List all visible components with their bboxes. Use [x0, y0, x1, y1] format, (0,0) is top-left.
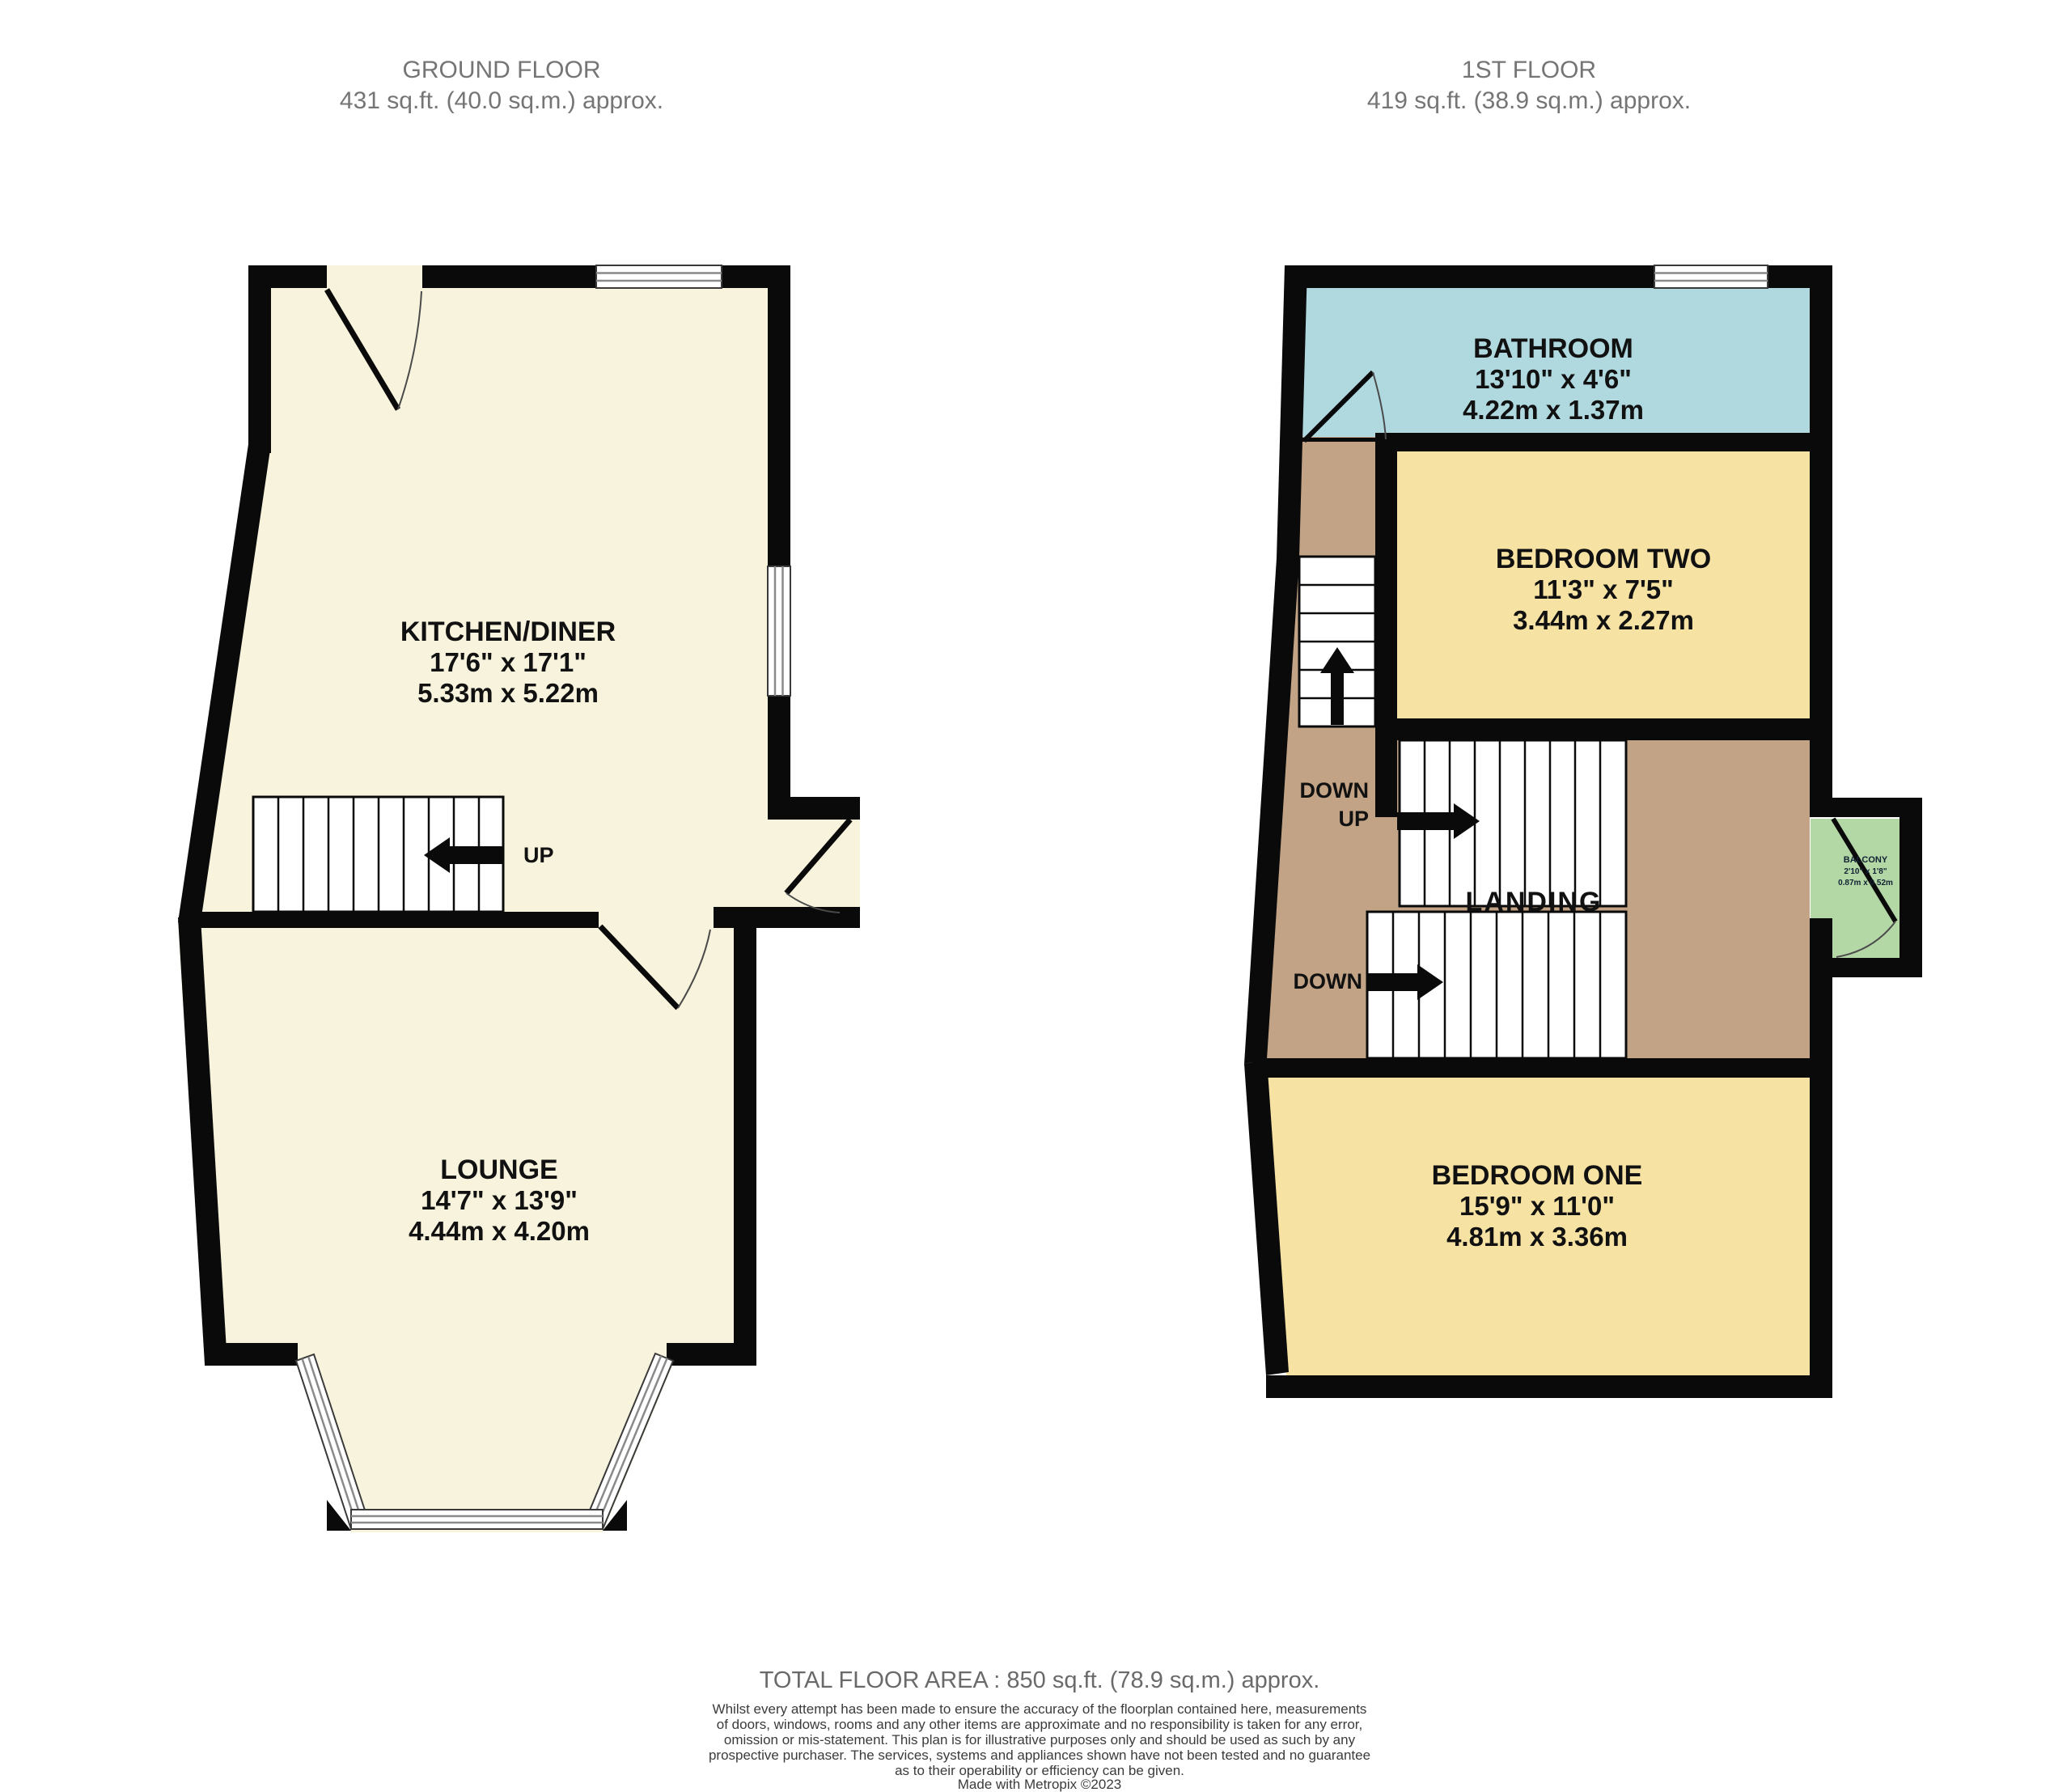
ground-floor-area: 431 sq.ft. (40.0 sq.m.) approx. [340, 87, 663, 114]
bedroom-one-imperial: 15'9" x 11'0" [1459, 1191, 1615, 1221]
balcony-label: BALCONY [1844, 855, 1888, 865]
upper-down-label: DOWN [1300, 778, 1369, 803]
kitchen-diner-imperial: 17'6" x 17'1" [430, 647, 587, 677]
bathroom-imperial: 13'10" x 4'6" [1475, 364, 1632, 394]
kitchen-diner-label: KITCHEN/DINER [400, 616, 616, 647]
bedroom-one-label: BEDROOM ONE [1432, 1160, 1643, 1191]
bathroom-top-window [1654, 265, 1768, 288]
lounge-imperial: 14'7" x 13'9" [421, 1185, 578, 1215]
landing-label: LANDING [1466, 887, 1603, 917]
bathroom-metric: 4.22m x 1.37m [1463, 395, 1644, 425]
kitchen-diner-metric: 5.33m x 5.22m [417, 678, 599, 708]
disclaimer-line: omission or mis-statement. This plan is … [724, 1732, 1356, 1748]
bathroom-label: BATHROOM [1473, 333, 1633, 364]
ground-floor-title: GROUND FLOOR [402, 57, 600, 83]
disclaimer-line: Whilst every attempt has been made to en… [713, 1701, 1367, 1717]
lounge-label: LOUNGE [440, 1154, 557, 1185]
ground-floor-stairs [253, 797, 503, 912]
first-floor-stairs-lower-flight [1367, 912, 1626, 1058]
ground-floor-plan: UP KITCHEN/DINER 17'6" x 17'1" 5.33m x 5… [178, 265, 860, 1532]
disclaimer-line: of doors, windows, rooms and any other i… [717, 1717, 1362, 1732]
first-floor-title: 1ST FLOOR [1462, 57, 1596, 83]
balcony-imperial: 2'10" x 1'8" [1844, 867, 1887, 876]
bedroom-two-metric: 3.44m x 2.27m [1513, 605, 1694, 635]
kitchen-top-window [596, 265, 722, 288]
total-floor-area: TOTAL FLOOR AREA : 850 sq.ft. (78.9 sq.m… [760, 1667, 1320, 1693]
up-arrow [450, 846, 503, 864]
bedroom-two-imperial: 11'3" x 7'5" [1533, 574, 1674, 604]
disclaimer-line: prospective purchaser. The services, sys… [709, 1748, 1370, 1763]
metropix-credit: Made with Metropix ©2023 [958, 1777, 1121, 1792]
first-floor-stairs-left-flight [1299, 557, 1375, 727]
balcony-metric: 0.87m x 0.52m [1838, 879, 1893, 888]
right-arrow [1367, 973, 1417, 991]
right-arrow [1397, 812, 1454, 830]
lounge-metric: 4.44m x 4.20m [409, 1216, 590, 1246]
ground-stairs-up-label: UP [523, 843, 554, 867]
first-floor-area: 419 sq.ft. (38.9 sq.m.) approx. [1367, 87, 1691, 114]
footer: TOTAL FLOOR AREA : 850 sq.ft. (78.9 sq.m… [709, 1667, 1370, 1792]
upper-up-label: UP [1338, 807, 1369, 831]
kitchen-right-window [768, 566, 790, 696]
bedroom-two-label: BEDROOM TWO [1496, 544, 1711, 574]
up-arrow [1331, 673, 1344, 725]
first-floor-plan: DOWN UP DOWN BATHROOM 13'10" x 4'6" 4.22… [1244, 265, 1922, 1398]
bedroom-one-metric: 4.81m x 3.36m [1446, 1222, 1628, 1252]
floorplan-page: GROUND FLOOR 431 sq.ft. (40.0 sq.m.) app… [0, 0, 2071, 1792]
floorplan-svg: GROUND FLOOR 431 sq.ft. (40.0 sq.m.) app… [0, 0, 2071, 1792]
first-floor-stairs-upper-flight [1397, 740, 1626, 906]
lower-down-label: DOWN [1294, 969, 1362, 993]
